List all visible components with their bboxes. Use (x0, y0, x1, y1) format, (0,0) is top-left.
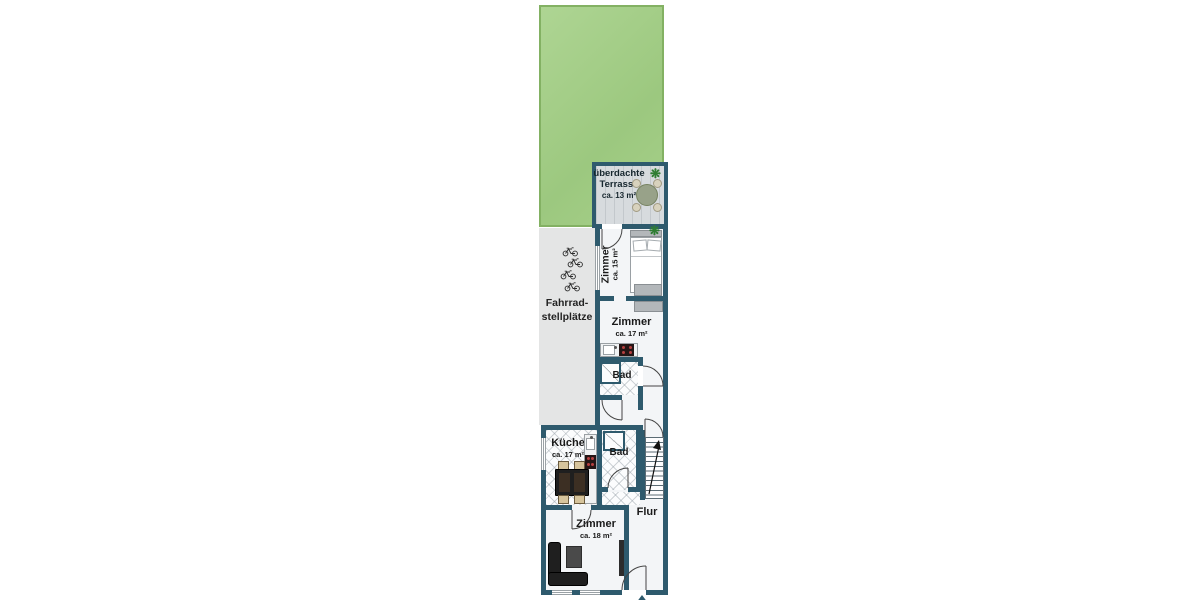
wall-kueche-z18 (541, 505, 572, 510)
bicycle-icon (562, 246, 579, 257)
plant-icon: ❋ (649, 224, 660, 237)
passage-floor (602, 492, 640, 505)
stove-burner (622, 351, 625, 354)
wardrobe (634, 284, 662, 296)
faucet-icon (614, 346, 617, 349)
chair (574, 495, 585, 504)
zimmer18-window (580, 590, 600, 595)
stove-burner (622, 346, 625, 349)
plant-icon: ❋ (650, 167, 661, 180)
stove-burner (587, 463, 590, 466)
zimmer17-name: Zimmer (600, 316, 663, 329)
room-label-zimmer15: Zimmer ca. 15 m² (580, 234, 640, 294)
kueche-sink (586, 438, 595, 450)
staircase (645, 437, 664, 499)
bad-lower-name: Bad (602, 447, 636, 459)
dining-table-panel (574, 473, 585, 492)
stove-burner (591, 457, 594, 460)
terrace-wall-right (664, 162, 668, 228)
tv (619, 540, 624, 576)
bad-upper-door-gap (638, 366, 643, 386)
bike-area-label: Fahrrad- stellplätze (534, 296, 600, 324)
coffee-table (566, 546, 582, 568)
sofa (548, 572, 588, 586)
terrace-door-gap (602, 224, 622, 229)
bicycle-icon (564, 281, 581, 292)
terrace-chair (653, 203, 662, 212)
wall-below-bad (595, 395, 622, 400)
room-label-bad-lower: Bad (602, 447, 636, 459)
stove-burner (629, 346, 632, 349)
zimmer15-area: ca. 15 m² (612, 245, 621, 283)
bed-pillow (647, 239, 662, 251)
floorplan-canvas: Fahrrad- stellplätze überdachte Terrasse… (0, 0, 1200, 600)
room-label-flur: Flur (630, 506, 664, 519)
stove-burner (591, 463, 594, 466)
terrace-chair (632, 203, 641, 212)
terrace-table (636, 184, 658, 206)
room-label-zimmer17: Zimmer ca. 17 m² (600, 316, 663, 338)
stove-burner (629, 351, 632, 354)
bike-area-label-line1: Fahrrad- (546, 297, 589, 309)
stove-burner (587, 457, 590, 460)
dining-table-panel (559, 473, 570, 492)
zimmer18-name: Zimmer (570, 518, 622, 531)
faucet-icon (590, 436, 593, 439)
divider-z15-z17 (600, 296, 614, 301)
bike-area-label-line2: stellplätze (542, 311, 593, 323)
upper-wall-right (663, 224, 668, 430)
zimmer17-area: ca. 17 m² (600, 329, 663, 338)
zimmer18-area: ca. 18 m² (570, 531, 622, 540)
bicycle-icon (560, 269, 577, 280)
wardrobe (634, 301, 663, 312)
bad-upper-name: Bad (604, 370, 640, 382)
terrace-label-line1: überdachte (592, 168, 646, 179)
room-label-zimmer18: Zimmer ca. 18 m² (570, 518, 622, 540)
zimmer18-window (552, 590, 572, 595)
entrance-arrow-icon (636, 595, 648, 600)
wall-z18-flur (624, 505, 629, 590)
chair (558, 495, 569, 504)
room-label-bad-upper: Bad (604, 370, 640, 382)
flur-name: Flur (630, 506, 664, 519)
